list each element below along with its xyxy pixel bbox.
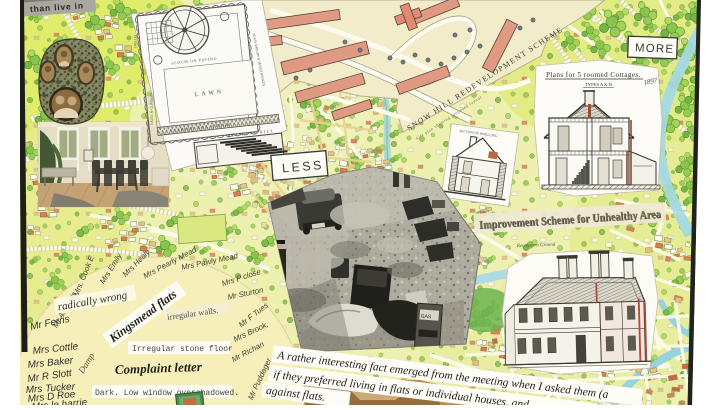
svg-text:Complaint letter: Complaint letter <box>115 359 203 377</box>
svg-text:Dark. Low window overshadowed.: Dark. Low window overshadowed. <box>95 389 239 398</box>
svg-text:HAZEL & CLIMBERS: HAZEL & CLIMBERS <box>149 93 154 125</box>
svg-text:Irregular stone floor: Irregular stone floor <box>132 345 233 354</box>
svg-text:Plans for 5 roomed Cottage: Plans for 5 roomed Cottages. <box>546 71 641 79</box>
svg-text:GAS: GAS <box>420 313 432 320</box>
svg-text:MORE: MORE <box>635 42 675 55</box>
svg-text:TYPES A & B.: TYPES A & B. <box>585 82 613 87</box>
svg-text:TRELLIS: TRELLIS <box>133 35 137 49</box>
